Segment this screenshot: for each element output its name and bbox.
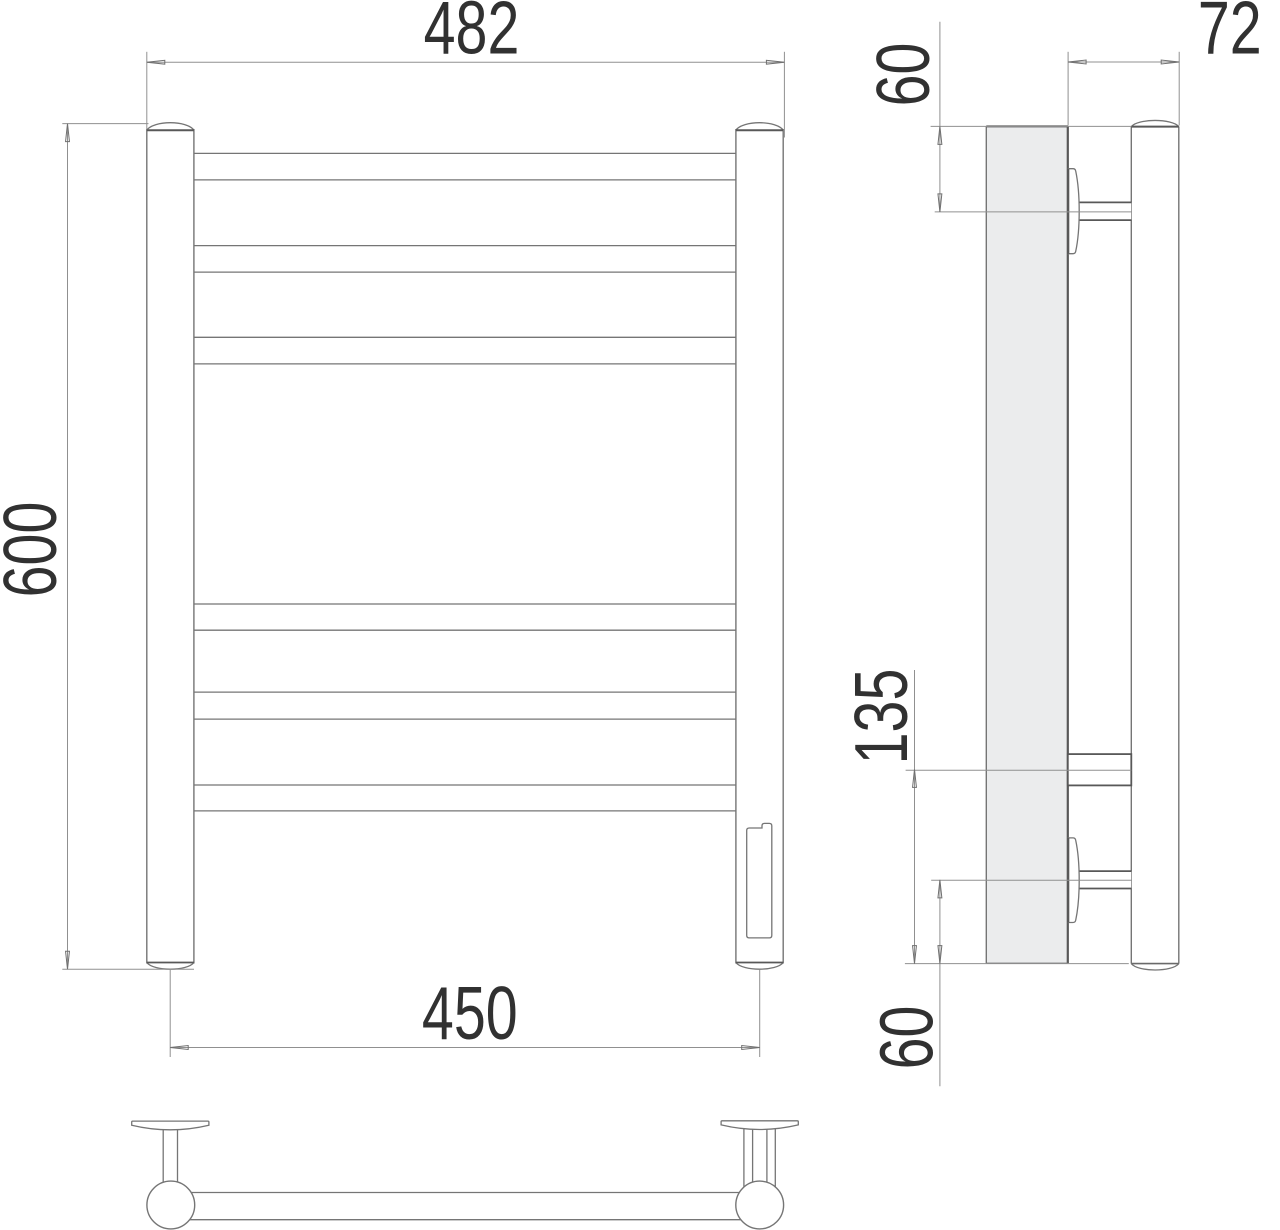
svg-text:450: 450	[422, 973, 518, 1056]
svg-text:72: 72	[1198, 0, 1262, 70]
svg-text:135: 135	[841, 669, 924, 765]
svg-text:60: 60	[866, 1006, 949, 1070]
svg-text:482: 482	[424, 0, 520, 70]
svg-text:60: 60	[863, 43, 946, 107]
svg-text:600: 600	[0, 502, 73, 598]
